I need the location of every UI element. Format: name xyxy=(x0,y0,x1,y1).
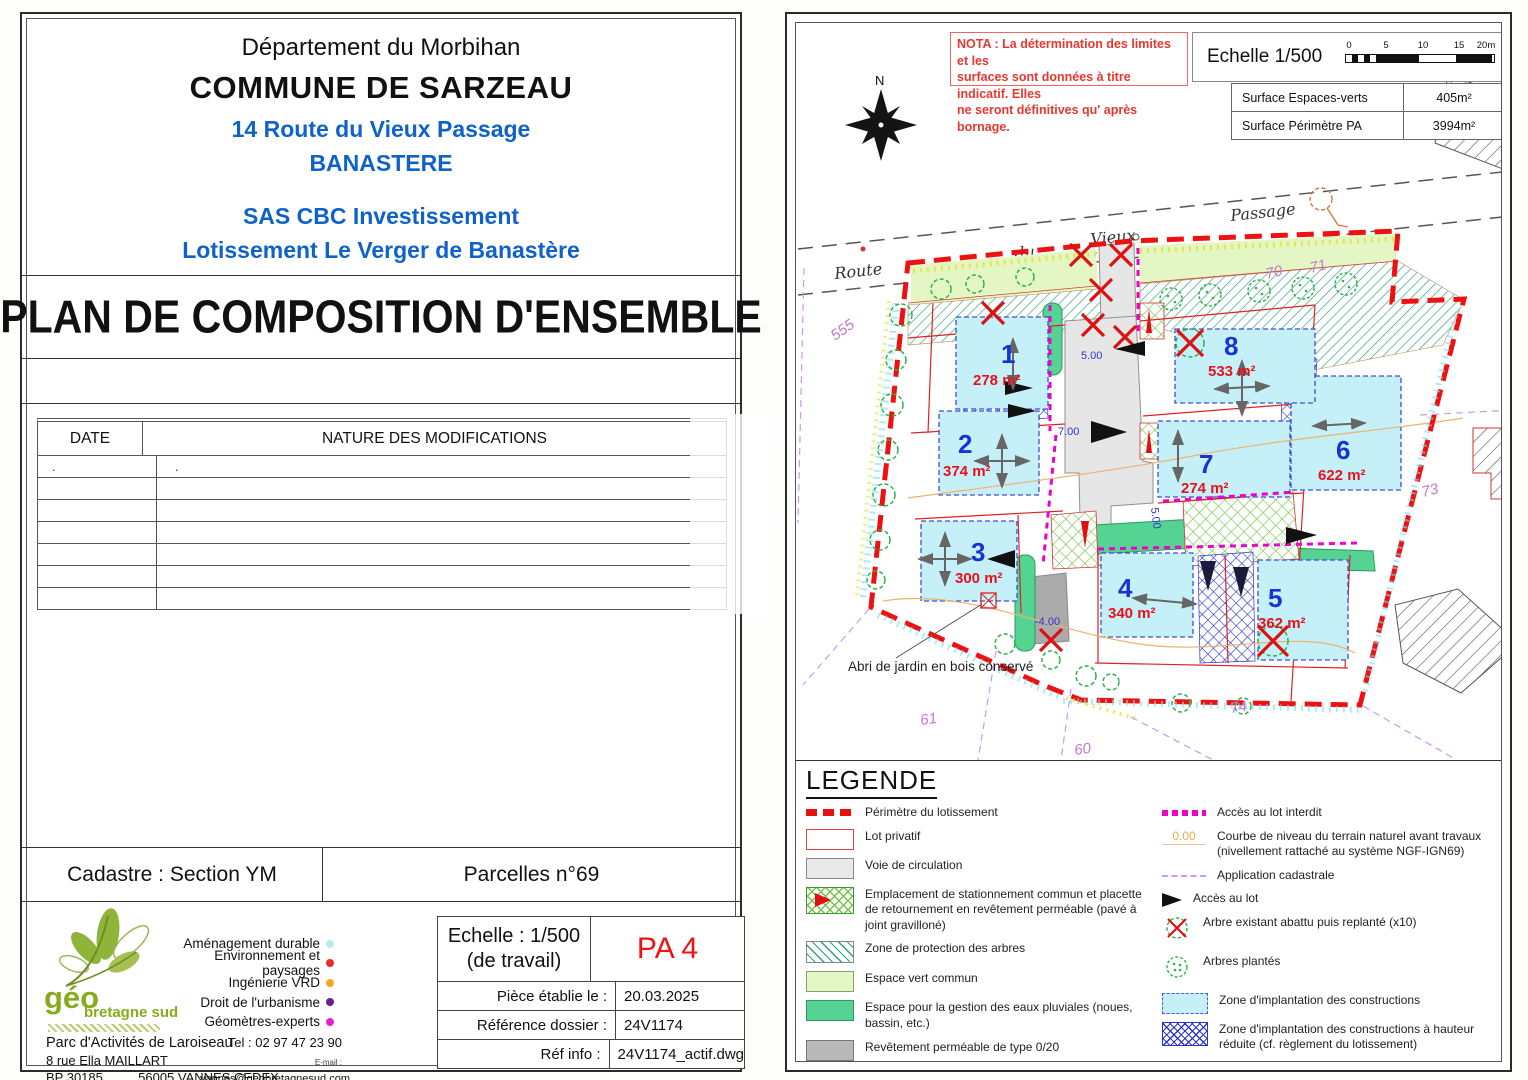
legend-label: Zone d'implantation des constructions à … xyxy=(1219,1022,1498,1053)
legend-left-column: Périmètre du lotissement Lot privatif Vo… xyxy=(806,805,1156,1062)
parcel-label: 60 xyxy=(1073,740,1093,759)
legend-label: Accès au lot xyxy=(1193,891,1498,907)
plan-sheet: Route du Vieux Passage xyxy=(785,12,1512,1072)
cadastre-parcelles: Parcelles n°69 xyxy=(323,848,740,901)
tick-label: 5 xyxy=(1383,40,1388,51)
green-space-swatch xyxy=(806,971,854,992)
lot-area: 533 m² xyxy=(1208,363,1256,380)
legend-item: Emplacement de stationnement commun et p… xyxy=(806,887,1156,934)
legend-label: Sens de faîtage principal des constructi… xyxy=(1219,1061,1498,1062)
lot-number: 7 xyxy=(1199,449,1213,479)
nota-box: NOTA : La détermination des limites et l… xyxy=(950,32,1188,86)
row-value: 24V1174 xyxy=(616,1011,744,1039)
service-dot xyxy=(326,998,334,1006)
surface-label: Surface Espaces-verts xyxy=(1232,84,1403,111)
lot-area: 340 m² xyxy=(1108,605,1156,622)
service-item: Droit de l'urbanisme xyxy=(162,993,334,1013)
svg-text:Passage: Passage xyxy=(1228,199,1296,225)
scale-box: Echelle 1/500 0 5 10 15 20m xyxy=(1192,32,1502,82)
project-label: Lotissement Le Verger de Banastère xyxy=(22,237,740,264)
service-dot xyxy=(326,940,334,948)
contour-swatch: 0.00 xyxy=(1162,829,1206,846)
permeable-surface-swatch xyxy=(806,1040,854,1061)
locality-label: BANASTERE xyxy=(22,150,740,177)
scale-value: Echelle : 1/500 xyxy=(448,924,580,949)
legend-label: Emplacement de stationnement commun et p… xyxy=(865,887,1156,934)
email-prefix: E-mail : xyxy=(315,1058,342,1067)
planted-tree-icon xyxy=(1162,954,1192,985)
table-row xyxy=(38,588,726,609)
legend-item: Lot privatif xyxy=(806,829,1156,850)
dim-label: 7.00 xyxy=(1058,426,1079,438)
tree-protection-swatch xyxy=(806,941,854,963)
nota-line: NOTA : La détermination des limites et l… xyxy=(957,36,1181,69)
existing-buildings xyxy=(1395,75,1502,693)
compass-north-label: N xyxy=(875,73,884,88)
legend-item: Accès au lot interdit xyxy=(1162,805,1498,821)
service-label: Droit de l'urbanisme xyxy=(200,995,320,1010)
row-label: Pièce établie le : xyxy=(438,982,616,1010)
piece-number: PA 4 xyxy=(591,917,744,981)
road-swatch xyxy=(806,858,854,879)
revetement-permeable xyxy=(1031,573,1069,644)
legend-label: Revêtement perméable de type 0/20 xyxy=(865,1040,1156,1056)
nature-cell: . xyxy=(157,456,726,477)
nota-line: ne seront définitives qu' après bornage. xyxy=(957,102,1181,135)
orange-tree-icon xyxy=(1310,188,1348,227)
cartouche-row: Réf info : 24V1174_actif.dwg xyxy=(438,1040,744,1068)
legend-item: Sens de faîtage principal des constructi… xyxy=(1162,1061,1498,1062)
legend-item: Zone d'implantation des constructions à … xyxy=(1162,1022,1498,1053)
legend-right-column: Accès au lot interdit 0.00 Courbe de niv… xyxy=(1162,805,1498,1062)
row-value: 20.03.2025 xyxy=(616,982,744,1010)
legend-label: Accès au lot interdit xyxy=(1217,805,1498,821)
legend-label: Zone d'implantation des constructions xyxy=(1219,993,1498,1009)
parcel-label: 73 xyxy=(1420,480,1441,501)
lot-number: 4 xyxy=(1118,573,1133,603)
leaf-icon xyxy=(58,907,154,986)
scale-label: Echelle 1/500 xyxy=(1193,46,1345,68)
surface-row: Surface Périmètre PA 3994m² xyxy=(1232,112,1502,139)
table-row xyxy=(38,544,726,566)
logo-hatch xyxy=(48,1024,160,1032)
tick-label: 20m xyxy=(1477,40,1495,51)
services-list: Aménagement durable Environnement et pay… xyxy=(162,934,334,1032)
lot-number: 1 xyxy=(1001,339,1015,369)
scale-cell: Echelle : 1/500 (de travail) xyxy=(438,917,591,981)
surface-label: Surface Périmètre PA xyxy=(1232,112,1403,139)
lot-area: 374 m² xyxy=(943,463,991,480)
scale-ticks: 0 5 10 15 20m xyxy=(1345,40,1495,53)
plan-title: PLAN DE COMPOSITION D'ENSEMBLE xyxy=(0,291,761,344)
lot-area: 622 m² xyxy=(1318,467,1366,484)
title-block-sheet: Département du Morbihan COMMUNE DE SARZE… xyxy=(20,12,742,1072)
perimeter-swatch xyxy=(806,809,854,816)
service-dot xyxy=(326,1018,334,1026)
legend-item: Revêtement perméable de type 0/20 xyxy=(806,1040,1156,1061)
lot-area: 278 m² xyxy=(973,372,1021,389)
service-label: Géomètres-experts xyxy=(204,1014,320,1029)
surfaces-table: Surface Espaces-verts 405m² Surface Péri… xyxy=(1231,83,1502,140)
dim-label: -4.00 xyxy=(1035,616,1060,628)
parcel-label: 555 xyxy=(828,316,859,345)
service-item: Géomètres-experts xyxy=(162,1012,334,1032)
document-header: Département du Morbihan COMMUNE DE SARZE… xyxy=(22,30,740,271)
service-label: Ingénierie VRD xyxy=(228,975,320,990)
legend-item: Arbre existant abattu puis replanté (x10… xyxy=(1162,915,1498,946)
empty-band xyxy=(22,357,740,404)
cartouche-row: Référence dossier : 24V1174 xyxy=(438,1011,744,1040)
legend-item: Zone d'implantation des constructions xyxy=(1162,993,1498,1014)
plan-frame: Route du Vieux Passage xyxy=(795,22,1502,1062)
legend-item: Arbres plantés xyxy=(1162,954,1498,985)
legend-label: Courbe de niveau du terrain naturel avan… xyxy=(1217,829,1498,860)
shed-annotation-text: Abri de jardin en bois conservé xyxy=(848,659,1033,674)
department-label: Département du Morbihan xyxy=(22,34,740,62)
lot-area: 362 m² xyxy=(1258,615,1306,632)
scale-bar-segments xyxy=(1345,54,1495,63)
bp-label: BP 30185 xyxy=(46,1070,103,1080)
legend-label: Espace vert commun xyxy=(865,971,1156,987)
firm-contact: Tel : 02 97 47 23 90 E-mail : vannes@geo… xyxy=(200,1034,342,1080)
legend-title: LEGENDE xyxy=(806,765,937,799)
legend-label: Voie de circulation xyxy=(865,858,1156,874)
access-arrow-icon xyxy=(1162,893,1182,907)
surface-value: 405m² xyxy=(1403,84,1502,111)
legend-label: Application cadastrale xyxy=(1217,868,1498,884)
felled-tree-icon xyxy=(1162,915,1192,946)
tick-label: 15 xyxy=(1454,40,1465,51)
page: Département du Morbihan COMMUNE DE SARZE… xyxy=(0,0,1528,1080)
stormwater-swatch xyxy=(806,1000,854,1021)
tel-label: Tel : 02 97 47 23 90 xyxy=(200,1034,342,1052)
access-forbidden-swatch xyxy=(1162,810,1206,816)
lot-number: 6 xyxy=(1336,435,1350,465)
legend-item: Accès au lot xyxy=(1162,891,1498,907)
legend-item: Périmètre du lotissement xyxy=(806,805,1156,821)
row-label: Référence dossier : xyxy=(438,1011,616,1039)
compass-icon: N xyxy=(845,73,917,161)
svg-text:Route: Route xyxy=(832,259,883,283)
service-label: Environnement et paysages xyxy=(162,948,320,978)
dim-label: 5.00 xyxy=(1081,350,1102,362)
surface-value: 3994m² xyxy=(1403,112,1502,139)
address-label: 14 Route du Vieux Passage xyxy=(22,116,740,143)
reduced-height-zone-swatch xyxy=(1162,1022,1208,1046)
cartouche-scale-row: Echelle : 1/500 (de travail) PA 4 xyxy=(438,917,744,982)
lot-number: 3 xyxy=(971,537,985,567)
modifications-table: DATE NATURE DES MODIFICATIONS . . xyxy=(37,418,727,610)
row-label: Réf info : xyxy=(438,1040,610,1068)
legend-label: Lot privatif xyxy=(865,829,1156,845)
date-column-header: DATE xyxy=(38,422,143,455)
table-row xyxy=(38,478,726,500)
lot-area: 274 m² xyxy=(1181,480,1229,497)
legend-item: Voie de circulation xyxy=(806,858,1156,879)
cartouche-row: Pièce établie le : 20.03.2025 xyxy=(438,982,744,1011)
lot-number: 8 xyxy=(1224,331,1238,361)
implantation-zone-swatch xyxy=(1162,993,1208,1014)
tick-label: 10 xyxy=(1418,40,1429,51)
lot-number: 2 xyxy=(958,429,972,459)
scale-note: (de travail) xyxy=(467,949,561,974)
plan-title-box: PLAN DE COMPOSITION D'ENSEMBLE xyxy=(22,275,740,359)
commune-label: COMMUNE DE SARZEAU xyxy=(22,70,740,106)
email-line: E-mail : vannes@geobretagnesud.com xyxy=(200,1052,342,1080)
row-value: 24V1174_actif.dwg xyxy=(610,1040,744,1068)
scan-artifact xyxy=(690,414,768,614)
legend-item: Espace pour la gestion des eaux pluviale… xyxy=(806,1000,1156,1031)
cadastre-section: Cadastre : Section YM xyxy=(22,848,323,901)
email-value: vannes@geobretagnesud.com xyxy=(200,1073,350,1080)
red-arrow-icon xyxy=(815,893,831,907)
legend-label: Arbre existant abattu puis replanté (x10… xyxy=(1203,915,1498,931)
modifications-header-row: DATE NATURE DES MODIFICATIONS xyxy=(38,422,726,456)
legend-item: Application cadastrale xyxy=(1162,868,1498,884)
table-row: . . xyxy=(38,456,726,478)
applicant-label: SAS CBC Investissement xyxy=(22,203,740,230)
legend-label: Périmètre du lotissement xyxy=(865,805,1156,821)
surface-row: Surface Espaces-verts 405m² xyxy=(1232,84,1502,112)
parking-swatch xyxy=(806,887,854,914)
legend-item: Espace vert commun xyxy=(806,971,1156,992)
table-row xyxy=(38,500,726,522)
scale-bar: 0 5 10 15 20m xyxy=(1345,40,1495,74)
legend-label: Espace pour la gestion des eaux pluviale… xyxy=(865,1000,1156,1031)
nota-line: surfaces sont données à titre indicatif.… xyxy=(957,69,1181,102)
lot-area: 300 m² xyxy=(955,570,1003,587)
parcel-label: 61 xyxy=(919,710,938,729)
legend-item: 0.00 Courbe de niveau du terrain naturel… xyxy=(1162,829,1498,860)
nature-column-header: NATURE DES MODIFICATIONS xyxy=(143,422,726,455)
legend-label: Zone de protection des arbres xyxy=(865,941,1156,957)
date-cell: . xyxy=(38,456,157,477)
lot-swatch xyxy=(806,829,854,850)
cadastre-band: Cadastre : Section YM Parcelles n°69 xyxy=(22,847,740,902)
service-dot xyxy=(326,979,334,987)
lot-number: 5 xyxy=(1268,583,1282,613)
cartouche-table: Echelle : 1/500 (de travail) PA 4 Pièce … xyxy=(437,916,745,1069)
legend-label: Arbres plantés xyxy=(1203,954,1498,970)
legend: LEGENDE Périmètre du lotissement Lot pri… xyxy=(796,760,1501,1061)
cadastral-swatch xyxy=(1162,875,1206,877)
tick-label: 0 xyxy=(1346,40,1351,51)
table-row xyxy=(38,566,726,588)
parcel-label: 74 xyxy=(1229,698,1248,717)
ridge-direction-icon xyxy=(1162,1061,1208,1062)
legend-item: Zone de protection des arbres xyxy=(806,941,1156,963)
service-item: Environnement et paysages xyxy=(162,954,334,974)
table-row xyxy=(38,522,726,544)
service-dot xyxy=(326,959,334,967)
